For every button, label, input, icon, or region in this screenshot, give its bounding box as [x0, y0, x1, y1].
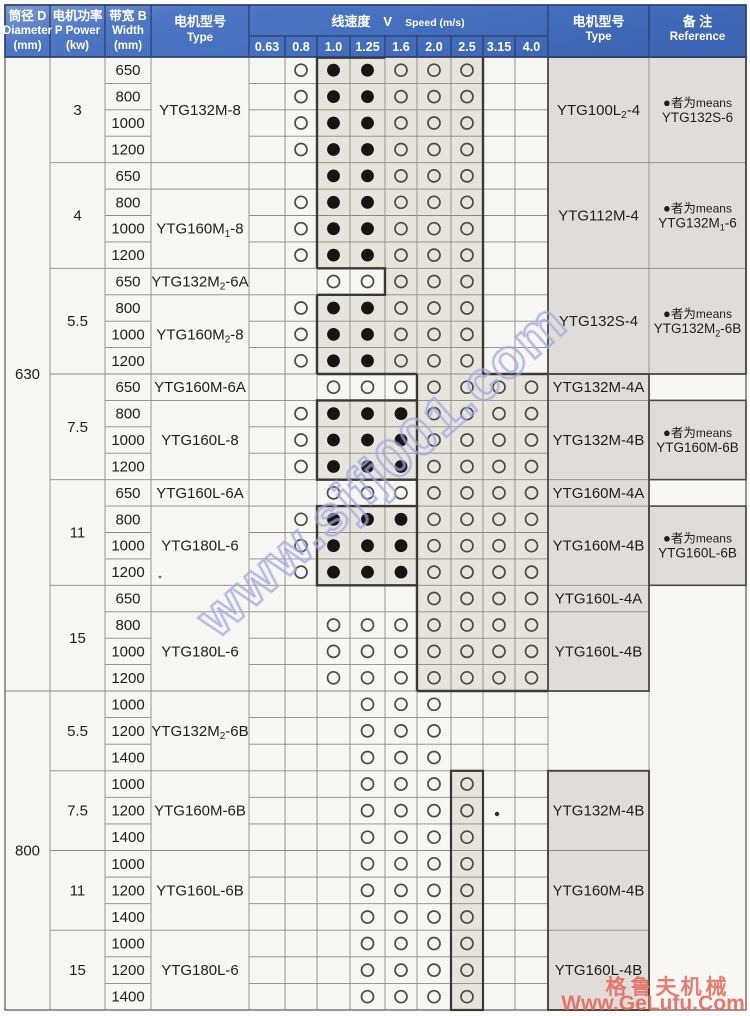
svg-text:YTG160M2-8: YTG160M2-8 [156, 326, 243, 345]
svg-text:P Power: P Power [55, 25, 101, 37]
svg-text:0.8: 0.8 [292, 40, 309, 54]
svg-text:800: 800 [115, 89, 140, 106]
svg-text:YTG132M2-6A: YTG132M2-6A [151, 274, 248, 293]
svg-text:1200: 1200 [111, 564, 144, 581]
svg-text:650: 650 [115, 485, 140, 502]
svg-text:1000: 1000 [111, 696, 144, 713]
svg-text:15: 15 [69, 962, 86, 979]
svg-text:●者为means: ●者为means [663, 531, 732, 546]
svg-text:Width: Width [112, 25, 144, 37]
svg-text:Www.GeLufu.Com: Www.GeLufu.Com [561, 992, 745, 1015]
svg-text:YTG132M2-6B: YTG132M2-6B [151, 723, 248, 742]
svg-text:2.5: 2.5 [458, 40, 475, 54]
svg-text:800: 800 [15, 843, 40, 860]
svg-text:YTG180L-6: YTG180L-6 [161, 538, 239, 555]
svg-text:1200: 1200 [111, 803, 144, 820]
svg-text:YTG160M-6A: YTG160M-6A [154, 379, 246, 396]
svg-text:电机功率: 电机功率 [52, 8, 103, 23]
svg-text:650: 650 [115, 591, 140, 608]
svg-text:3: 3 [73, 102, 81, 119]
svg-text:●者为means: ●者为means [663, 306, 732, 321]
svg-text:YTG160M1-8: YTG160M1-8 [156, 221, 243, 240]
svg-text:YTG112M-4: YTG112M-4 [558, 208, 639, 225]
svg-text:备 注: 备 注 [682, 14, 713, 29]
svg-text:Diameter: Diameter [3, 25, 53, 37]
svg-text:5.5: 5.5 [67, 723, 88, 740]
svg-text:YTG132M-4B: YTG132M-4B [553, 432, 645, 449]
svg-text:7.5: 7.5 [67, 419, 88, 436]
svg-text:630: 630 [15, 366, 40, 383]
svg-text:1000: 1000 [111, 856, 144, 873]
svg-text:YTG132M2-6B: YTG132M2-6B [654, 321, 742, 338]
svg-text:1200: 1200 [111, 247, 144, 264]
svg-text:1200: 1200 [111, 353, 144, 370]
svg-text:Reference: Reference [670, 31, 726, 43]
svg-text:650: 650 [115, 168, 140, 185]
svg-text:3.15: 3.15 [487, 40, 511, 54]
svg-text:1200: 1200 [111, 459, 144, 476]
svg-text:800: 800 [115, 300, 140, 317]
svg-text:电机型号: 电机型号 [572, 14, 624, 29]
svg-text:1000: 1000 [111, 115, 144, 132]
svg-text:YTG132M-4A: YTG132M-4A [553, 379, 645, 396]
svg-text:线速度 V Speed (m/s): 线速度 V Speed (m/s) [331, 14, 464, 29]
svg-text:带宽 B: 带宽 B [109, 8, 147, 23]
svg-text:11: 11 [70, 525, 86, 542]
svg-text:YTG160M-4A: YTG160M-4A [553, 485, 645, 502]
svg-text:YTG132S-6: YTG132S-6 [662, 110, 733, 125]
svg-text:YTG100L2-4: YTG100L2-4 [557, 102, 640, 121]
svg-text:(kw): (kw) [66, 40, 89, 52]
svg-text:YTG160M-6B: YTG160M-6B [154, 803, 246, 820]
svg-text:800: 800 [115, 617, 140, 634]
svg-text:1000: 1000 [111, 221, 144, 238]
svg-text:1200: 1200 [111, 882, 144, 899]
svg-text:2.0: 2.0 [425, 40, 442, 54]
svg-text:800: 800 [115, 406, 140, 423]
svg-text:1400: 1400 [111, 989, 144, 1006]
svg-text:1.6: 1.6 [392, 40, 409, 54]
svg-text:YTG132M-4B: YTG132M-4B [553, 803, 645, 820]
svg-text:1000: 1000 [111, 776, 144, 793]
svg-text:筒径 D: 筒径 D [9, 8, 47, 23]
svg-text:1400: 1400 [111, 750, 144, 767]
svg-text:YTG160M-6B: YTG160M-6B [656, 440, 739, 455]
svg-text:4: 4 [73, 208, 81, 225]
svg-text:YTG132M-8: YTG132M-8 [159, 102, 241, 119]
svg-text:800: 800 [115, 194, 140, 211]
svg-text:650: 650 [115, 379, 140, 396]
svg-text:1200: 1200 [111, 670, 144, 687]
svg-text:YTG160L-6B: YTG160L-6B [658, 546, 737, 561]
svg-text:(mm): (mm) [13, 40, 41, 52]
svg-text:YTG180L-6: YTG180L-6 [161, 962, 239, 979]
svg-text:650: 650 [115, 274, 140, 291]
svg-text:11: 11 [70, 882, 86, 899]
svg-text:5.5: 5.5 [67, 313, 88, 330]
svg-text:YTG132M1-6: YTG132M1-6 [658, 216, 737, 233]
svg-text:YTG160L-4B: YTG160L-4B [555, 643, 643, 660]
svg-text:电机型号: 电机型号 [174, 14, 226, 29]
svg-text:1000: 1000 [111, 326, 144, 343]
svg-text:1200: 1200 [111, 142, 144, 159]
svg-text:1000: 1000 [111, 432, 144, 449]
svg-text:(mm): (mm) [114, 40, 142, 52]
svg-text:15: 15 [69, 630, 86, 647]
svg-text:●者为means: ●者为means [663, 201, 732, 216]
svg-text:1.0: 1.0 [325, 40, 342, 54]
svg-text:YTG160M-4B: YTG160M-4B [553, 538, 645, 555]
svg-text:Type: Type [187, 32, 213, 44]
svg-text:YTG132S-4: YTG132S-4 [559, 313, 638, 330]
svg-text:4.0: 4.0 [523, 40, 540, 54]
svg-text:1000: 1000 [111, 538, 144, 555]
svg-text:0.63: 0.63 [255, 40, 279, 54]
svg-text:1000: 1000 [111, 643, 144, 660]
svg-text:YTG160L-6A: YTG160L-6A [156, 485, 244, 502]
svg-text:1400: 1400 [111, 829, 144, 846]
svg-text:650: 650 [115, 62, 140, 79]
svg-text:●者为means: ●者为means [663, 95, 732, 110]
svg-text:1200: 1200 [111, 723, 144, 740]
svg-text:1.25: 1.25 [355, 40, 379, 54]
svg-text:YTG160L-8: YTG160L-8 [161, 432, 239, 449]
svg-text:800: 800 [115, 511, 140, 528]
svg-text:●者为means: ●者为means [663, 425, 732, 440]
svg-text:YTG160L-4A: YTG160L-4A [555, 591, 643, 608]
svg-text:1000: 1000 [111, 936, 144, 953]
svg-text:YTG160M-4B: YTG160M-4B [553, 882, 645, 899]
svg-text:1200: 1200 [111, 962, 144, 979]
svg-text:7.5: 7.5 [67, 803, 88, 820]
svg-text:YTG160L-6B: YTG160L-6B [156, 882, 244, 899]
svg-text:Type: Type [586, 31, 612, 43]
svg-text:1400: 1400 [111, 909, 144, 926]
